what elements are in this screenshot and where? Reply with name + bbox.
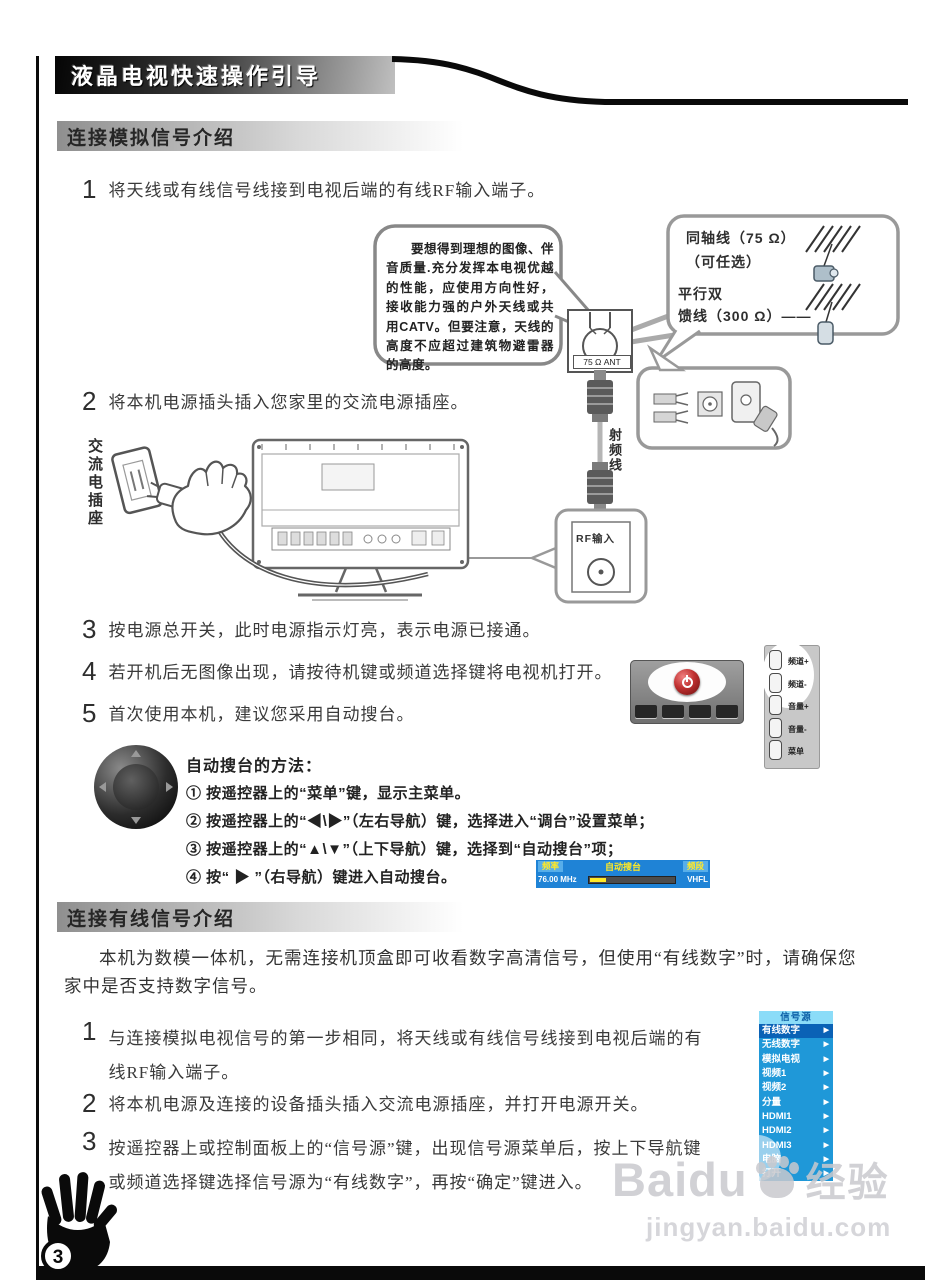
panel-key	[635, 705, 657, 718]
section1-title: 连接模拟信号介绍	[67, 123, 235, 150]
side-button-strip: 频道+ 频道- 音量+ 音量- 菜单	[764, 645, 820, 769]
power-plug-illustration	[638, 348, 790, 448]
channel-up-label: 频道+	[788, 652, 818, 675]
section1-header: 连接模拟信号介绍	[57, 121, 463, 151]
step-number: 3	[82, 1128, 96, 1154]
step-row: 3 按电源总开关，此时电源指示灯亮，表示电源已接通。	[82, 616, 540, 643]
watermark: Baidu 经验 jingyan.baidu.com	[612, 1150, 891, 1243]
arrow-right-icon: ▶	[824, 1110, 829, 1124]
power-icon	[682, 677, 693, 688]
hand-icon: 3	[34, 1172, 122, 1278]
source-menu-title: 信号源	[759, 1011, 833, 1024]
source-menu-item: 视频2▶	[759, 1081, 833, 1095]
menu-label: 菜单	[788, 742, 818, 765]
page-number-hand: 3	[34, 1172, 122, 1280]
section2-intro: 本机为数模一体机，无需连接机顶盒即可收看数字高清信号，但使用“有线数字”时，请确…	[64, 944, 866, 1000]
nav-center	[113, 764, 159, 810]
section2-header: 连接有线信号介绍	[57, 902, 463, 932]
osd-freq-value: 76.00 MHz	[538, 875, 577, 884]
arrow-right-icon: ▶	[824, 1124, 829, 1138]
watermark-suffix: 经验	[806, 1150, 890, 1208]
step-number: 3	[82, 616, 96, 642]
coax-optional-label: （可任选）	[686, 252, 761, 272]
volume-down-label: 音量-	[788, 720, 818, 743]
page-frame-bottom	[36, 1266, 925, 1280]
source-menu-item: 无线数字▶	[759, 1038, 833, 1052]
auto-search-osd: 频率 自动搜台 频段 76.00 MHz VHFL	[536, 860, 710, 888]
source-menu-item: HDMI1▶	[759, 1110, 833, 1124]
osd-progress-bar	[588, 876, 676, 884]
volume-up-label: 音量+	[788, 697, 818, 720]
step-row: 1 将天线或有线信号线接到电视后端的有线RF输入端子。	[82, 176, 545, 203]
step-number: 1	[82, 1018, 96, 1044]
nav-up-icon	[131, 750, 141, 757]
source-menu-item: 视频1▶	[759, 1067, 833, 1081]
source-menu-item-selected: 有线数字▶	[759, 1024, 833, 1038]
power-button	[674, 669, 700, 695]
step-text: 首次使用本机，建议您采用自动搜台。	[108, 700, 414, 727]
arrow-right-icon: ▶	[824, 1096, 829, 1110]
auto-search-title: 自动搜台的方法：	[186, 752, 322, 776]
hand-plug-illustration	[111, 447, 250, 535]
step-row: 4 若开机后无图像出现，请按待机键或频道选择键将电视机打开。	[82, 658, 612, 685]
baidu-paw-icon	[754, 1156, 800, 1202]
source-menu-item: 分量▶	[759, 1095, 833, 1109]
nav-left-icon	[99, 782, 106, 792]
nav-down-icon	[131, 817, 141, 824]
step-row: 5 首次使用本机，建议您采用自动搜台。	[82, 700, 414, 727]
panel-key	[662, 705, 684, 718]
ac-socket-label: 交流电插座	[84, 438, 105, 528]
strip-button	[769, 650, 782, 670]
manual-page: 液晶电视快速操作引导 连接模拟信号介绍 1 将天线或有线信号线接到电视后端的有线…	[0, 0, 925, 1280]
arrow-right-icon: ▶	[824, 1038, 829, 1052]
auto-step-1: ① 按遥控器上的“菜单”键，显示主菜单。	[186, 780, 766, 808]
arrow-right-icon: ▶	[824, 1067, 829, 1081]
ant-75ohm-label: 75 Ω ANT	[573, 355, 631, 369]
panel-keys	[635, 705, 738, 718]
osd-band-value: VHFL	[687, 875, 708, 884]
page-number: 3	[53, 1247, 64, 1268]
page-title: 液晶电视快速操作引导	[71, 59, 321, 91]
navigation-pad	[94, 745, 178, 829]
step-number: 5	[82, 700, 96, 726]
rf-input-label: RF输入	[576, 531, 615, 546]
strip-button	[769, 740, 782, 760]
twinlead-label-1: 平行双	[678, 284, 723, 304]
watermark-url: jingyan.baidu.com	[646, 1212, 891, 1243]
step-text: 将本机电源及连接的设备插头插入交流电源插座，并打开电源开关。	[108, 1090, 648, 1117]
header-swoosh	[390, 54, 912, 108]
channel-down-label: 频道-	[788, 675, 818, 698]
twinlead-label-2: 馈线（300 Ω）——	[678, 306, 811, 326]
arrow-right-icon: ▶	[824, 1024, 829, 1038]
step-number: 2	[82, 1090, 96, 1116]
strip-button	[769, 695, 782, 715]
page-frame-left	[36, 56, 39, 1280]
step-number: 4	[82, 658, 96, 684]
osd-band-label: 频段	[683, 861, 708, 872]
step-number: 1	[82, 176, 96, 202]
step-text: 按电源总开关，此时电源指示灯亮，表示电源已接通。	[108, 616, 540, 643]
coax-label: 同轴线（75 Ω）	[686, 228, 796, 248]
strip-button	[769, 718, 782, 738]
panel-key	[716, 705, 738, 718]
arrow-right-icon: ▶	[824, 1053, 829, 1067]
tv-control-panel	[630, 660, 744, 724]
step-text: 若开机后无图像出现，请按待机键或频道选择键将电视机打开。	[108, 658, 612, 685]
arrow-right-icon: ▶	[824, 1081, 829, 1095]
step-row: 2 将本机电源及连接的设备插头插入交流电源插座，并打开电源开关。	[82, 1090, 648, 1117]
strip-buttons	[769, 650, 782, 763]
rf-input-port	[468, 510, 646, 602]
advice-bubble-text: 要想得到理想的图像、伴音质量.充分发挥本电视优越的性能，应使用方向性好，接收能力…	[386, 240, 554, 376]
source-menu-item: 模拟电视▶	[759, 1053, 833, 1067]
osd-title: 自动搜台	[605, 860, 641, 873]
source-menu-item: HDMI2▶	[759, 1124, 833, 1138]
rf-cable-label: 射频线	[605, 428, 624, 473]
auto-step-2: ② 按遥控器上的“◀\▶”（左右导航）键，选择进入“调台”设置菜单；	[186, 808, 766, 836]
page-header: 液晶电视快速操作引导	[55, 56, 395, 94]
strip-button	[769, 673, 782, 693]
nav-right-icon	[166, 782, 173, 792]
panel-key	[689, 705, 711, 718]
watermark-brand: Baidu	[612, 1152, 748, 1207]
section2-title: 连接有线信号介绍	[67, 904, 235, 931]
step-text: 将天线或有线信号线接到电视后端的有线RF输入端子。	[108, 176, 545, 203]
step-row: 1 与连接模拟电视信号的第一步相同，将天线或有线信号线接到电视后端的有线RF输入…	[82, 1018, 714, 1090]
osd-freq-label: 频率	[538, 861, 563, 872]
step-text: 与连接模拟电视信号的第一步相同，将天线或有线信号线接到电视后端的有线RF输入端子…	[108, 1018, 714, 1090]
strip-labels: 频道+ 频道- 音量+ 音量- 菜单	[788, 652, 818, 765]
